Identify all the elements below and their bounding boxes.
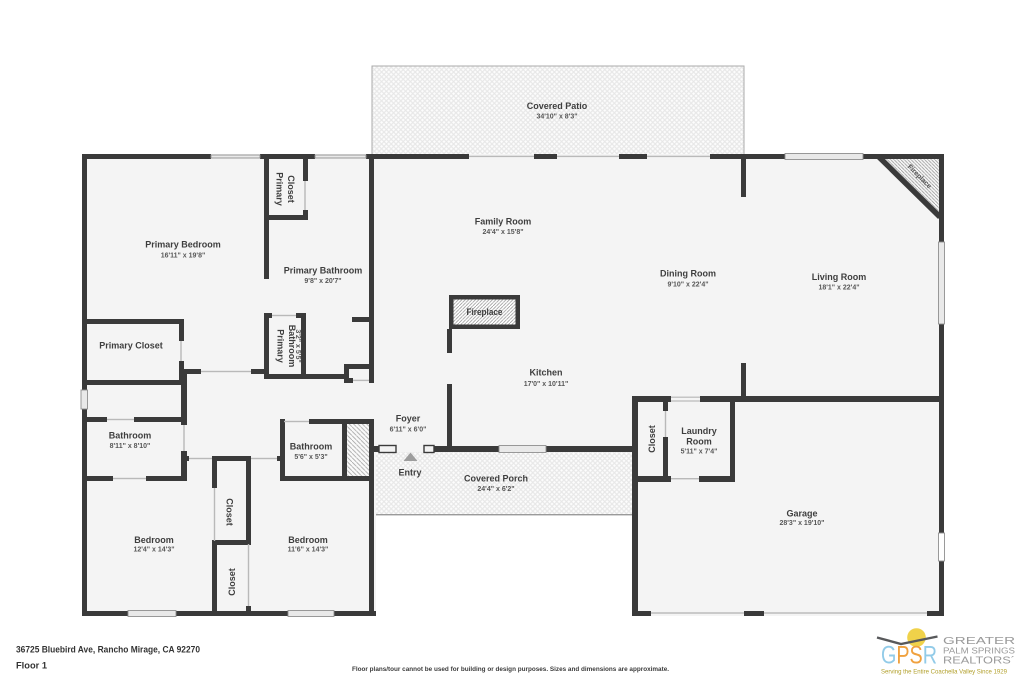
svg-text:Covered Patio: Covered Patio xyxy=(527,101,588,111)
svg-text:36725 Bluebird Ave, Rancho Mir: 36725 Bluebird Ave, Rancho Mirage, CA 92… xyxy=(16,645,200,655)
svg-text:5'11" x 7'4": 5'11" x 7'4" xyxy=(681,449,718,456)
svg-text:18'1" x 22'4": 18'1" x 22'4" xyxy=(818,285,859,292)
svg-text:Closet: Closet xyxy=(225,498,235,526)
svg-text:Closet: Closet xyxy=(286,175,296,203)
svg-text:Room: Room xyxy=(686,437,712,447)
svg-text:5'6" x 5'3": 5'6" x 5'3" xyxy=(294,454,327,461)
svg-text:6'11" x 6'0": 6'11" x 6'0" xyxy=(390,427,427,434)
svg-text:Closet: Closet xyxy=(227,568,237,596)
svg-text:Foyer: Foyer xyxy=(396,414,421,424)
svg-text:Bedroom: Bedroom xyxy=(288,535,328,545)
svg-text:11'6" x 14'3": 11'6" x 14'3" xyxy=(288,547,329,554)
svg-text:Primary: Primary xyxy=(275,172,285,206)
svg-text:Family Room: Family Room xyxy=(475,217,532,227)
svg-text:34'10" x 8'3": 34'10" x 8'3" xyxy=(536,114,577,121)
svg-text:9'8" x 20'7": 9'8" x 20'7" xyxy=(304,278,341,285)
svg-text:Dining Room: Dining Room xyxy=(660,269,716,279)
svg-text:Primary: Primary xyxy=(276,329,286,363)
svg-text:Covered Porch: Covered Porch xyxy=(464,474,528,484)
svg-text:Kitchen: Kitchen xyxy=(529,368,562,378)
svg-text:28'3" x 19'10": 28'3" x 19'10" xyxy=(779,520,824,527)
svg-text:PALM SPRINGS: PALM SPRINGS xyxy=(943,646,1015,656)
svg-text:Bathroom: Bathroom xyxy=(109,431,152,441)
svg-text:24'4" x 6'2": 24'4" x 6'2" xyxy=(477,486,514,493)
svg-text:Living Room: Living Room xyxy=(812,272,867,282)
svg-text:Closet: Closet xyxy=(647,425,657,453)
svg-text:Fireplace: Fireplace xyxy=(467,307,503,317)
svg-text:9'10" x 22'4": 9'10" x 22'4" xyxy=(667,282,708,289)
svg-text:24'4" x 15'8": 24'4" x 15'8" xyxy=(482,229,523,236)
svg-text:Primary Bedroom: Primary Bedroom xyxy=(145,240,221,250)
svg-text:16'11" x 19'8": 16'11" x 19'8" xyxy=(161,253,206,260)
svg-text:Floor 1: Floor 1 xyxy=(16,661,47,671)
svg-text:REALTORS´: REALTORS´ xyxy=(943,655,1015,667)
svg-text:Entry: Entry xyxy=(398,468,421,478)
svg-text:Laundry: Laundry xyxy=(681,426,717,436)
svg-text:3'2" x 5'5": 3'2" x 5'5" xyxy=(294,329,301,362)
svg-text:Garage: Garage xyxy=(786,509,817,519)
svg-text:Floor plans/tour cannot be use: Floor plans/tour cannot be used for buil… xyxy=(352,666,669,673)
svg-text:8'11" x 8'10": 8'11" x 8'10" xyxy=(110,443,151,450)
svg-text:17'0" x 10'11": 17'0" x 10'11" xyxy=(524,381,569,388)
svg-text:Bedroom: Bedroom xyxy=(134,535,174,545)
svg-text:12'4" x 14'3": 12'4" x 14'3" xyxy=(133,547,174,554)
svg-text:Serving the Entire Coachella V: Serving the Entire Coachella Valley Sinc… xyxy=(881,669,1008,676)
svg-text:GPSR: GPSR xyxy=(881,642,937,670)
svg-text:Primary Closet: Primary Closet xyxy=(99,341,163,351)
svg-text:Bathroom: Bathroom xyxy=(290,442,333,452)
svg-text:Primary Bathroom: Primary Bathroom xyxy=(284,266,363,276)
